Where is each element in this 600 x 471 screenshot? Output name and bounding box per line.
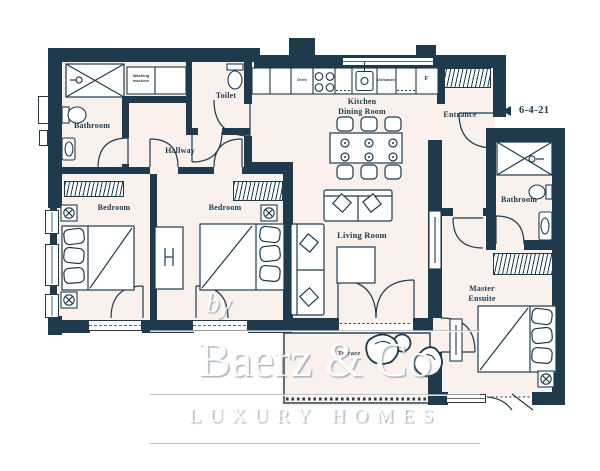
wall-segment xyxy=(532,392,565,405)
wall-segment xyxy=(442,208,453,216)
watermark-line-bottom xyxy=(150,443,480,444)
wall-segment xyxy=(186,128,198,135)
wall-segment xyxy=(437,62,445,104)
wall-segment xyxy=(483,208,496,216)
window xyxy=(45,294,59,318)
wall-segment xyxy=(552,254,565,394)
revision-date: 6-4-21 xyxy=(519,105,549,116)
wall-segment xyxy=(142,320,194,333)
window xyxy=(39,130,48,146)
arrow-left-icon xyxy=(502,106,511,116)
wall-segment xyxy=(150,174,157,320)
room-label-kitchen-dining: Kitchen Dining Room xyxy=(317,97,407,117)
room-label-bedroom-middle: Bedroom xyxy=(192,203,258,213)
room-floor-terrace xyxy=(282,332,432,406)
window xyxy=(88,320,142,331)
room-label-kitchen-line1: Kitchen xyxy=(317,97,407,107)
wall-segment xyxy=(552,128,565,254)
window xyxy=(45,244,59,286)
room-label-bathroom-right: Bathroom xyxy=(489,195,549,205)
room-label-master-line1: Master xyxy=(452,284,512,294)
wall-segment xyxy=(186,62,192,132)
room-label-toilet: Toilet xyxy=(202,91,250,101)
room-label-bathroom-top: Bathroom xyxy=(60,121,124,131)
wall-segment xyxy=(178,167,214,174)
wall-segment xyxy=(48,320,90,333)
room-label-kitchen-line2: Dining Room xyxy=(317,107,407,117)
wall-segment xyxy=(283,168,293,318)
room-label-master-line2: Ensuite xyxy=(452,294,512,304)
watermark-tagline: LUXURY HOMES xyxy=(148,405,482,428)
window xyxy=(192,320,248,331)
window xyxy=(45,210,59,234)
wall-segment xyxy=(486,142,496,240)
wall-segment xyxy=(48,48,260,62)
wall-segment xyxy=(524,240,565,250)
wall-segment xyxy=(222,128,250,135)
coat-closet-hatch-entrance xyxy=(441,68,491,88)
wall-segment xyxy=(289,38,315,57)
room-label-master-ensuite: Master Ensuite xyxy=(452,284,512,304)
wall-segment xyxy=(413,318,433,331)
window xyxy=(446,394,486,403)
label-oven: Oven xyxy=(291,78,313,83)
wall-segment xyxy=(283,318,339,331)
revision-marker: 6-4-21 xyxy=(502,105,549,116)
label-washing-machine: Washing machine xyxy=(127,74,155,83)
wall-segment xyxy=(428,352,442,392)
wall-segment xyxy=(428,140,442,318)
wardrobe-hatch-master xyxy=(493,253,553,275)
window xyxy=(38,96,49,124)
wardrobe-hatch-bedroom-middle xyxy=(233,181,283,201)
wall-segment xyxy=(244,136,252,166)
wall-segment xyxy=(128,96,186,103)
wall-segment xyxy=(486,240,496,250)
room-label-bedroom-left: Bedroom xyxy=(83,203,145,213)
wall-segment xyxy=(416,45,436,56)
wall-segment xyxy=(428,392,448,405)
wardrobe-hatch-bedroom-left xyxy=(64,181,124,197)
room-label-terrace: Terrace xyxy=(321,350,377,358)
wall-segment xyxy=(62,167,150,174)
label-dishwasher: Dishwasher xyxy=(377,78,396,82)
floor-plan: Bathroom Toilet Hallway Kitchen Dining R… xyxy=(0,0,600,471)
window xyxy=(342,57,434,66)
room-label-hallway: Hallway xyxy=(149,146,211,156)
room-label-living-room: Living Room xyxy=(321,230,403,241)
wall-segment xyxy=(242,167,292,174)
room-label-entrance: Entrance xyxy=(431,110,489,120)
label-fridge: F xyxy=(416,75,437,82)
